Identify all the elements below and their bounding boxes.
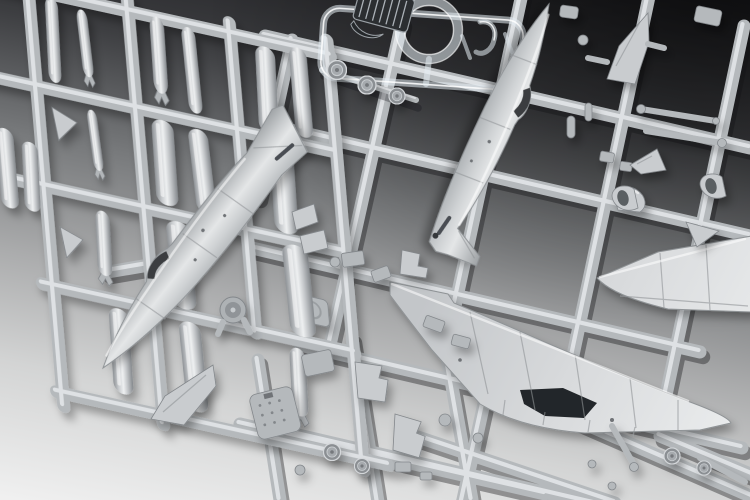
wheel — [323, 443, 340, 460]
model-kit-sprues-photo — [0, 0, 750, 500]
wheel — [354, 458, 369, 473]
photo-canvas — [0, 0, 750, 500]
